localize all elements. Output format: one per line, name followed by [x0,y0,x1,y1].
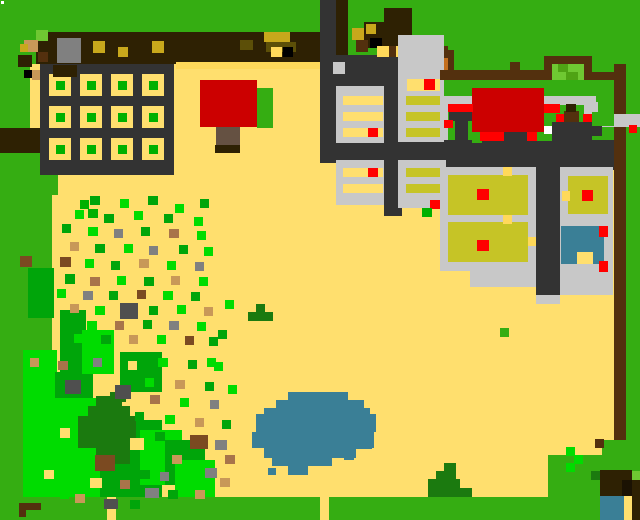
plants-misc-rect [428,479,460,488]
plants-misc-rect [632,480,640,520]
plants-misc [0,0,640,520]
plants-misc-rect [19,503,26,517]
plants-misc-rect [591,471,600,480]
plants-misc-rect [428,488,472,497]
plants-misc-rect [600,496,624,520]
plants-misc-rect [566,463,575,472]
plants-misc-rect [631,471,640,480]
plants-misc-rect [574,455,583,464]
game-map-viewport[interactable] [0,0,640,520]
plants-misc-rect [500,328,509,337]
plants-misc-rect [248,312,273,321]
plants-misc-rect [444,463,456,471]
plants-misc-rect [624,496,632,520]
plants-misc-rect [436,471,456,479]
plants-misc-rect [595,439,604,448]
plants-misc-rect [1,1,4,4]
